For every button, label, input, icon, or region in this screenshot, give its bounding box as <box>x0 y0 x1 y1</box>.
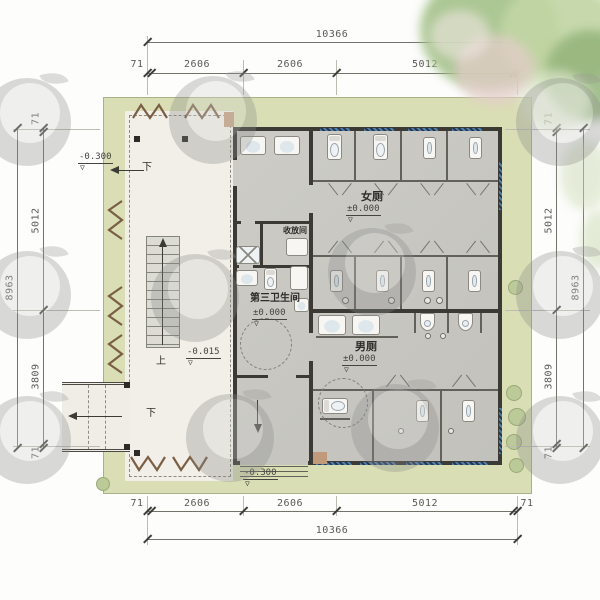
door-swing <box>452 371 476 388</box>
squat-toilet <box>423 137 436 159</box>
stall-partition <box>372 390 374 461</box>
shrub <box>96 477 110 491</box>
dim-bottom-seg: 2606 <box>268 498 312 509</box>
stall-partition <box>440 390 442 461</box>
door-swing <box>386 371 410 388</box>
level-marker-women: ±0.000▽ <box>346 204 381 223</box>
sink <box>236 270 258 286</box>
window <box>406 462 442 465</box>
sink <box>240 136 266 155</box>
squat-toilet <box>469 137 482 159</box>
dim-bottom-seg: 71 <box>128 498 146 509</box>
extension-line <box>243 60 244 95</box>
door-swing <box>328 237 352 254</box>
pier <box>224 112 234 127</box>
toilet <box>373 134 388 160</box>
door-swing <box>328 182 352 199</box>
exit-direction-line <box>118 170 144 171</box>
floor-drain <box>342 297 349 304</box>
room-label-third-bathroom: 第三卫生间 <box>240 289 310 304</box>
urinal <box>420 313 435 331</box>
floor-drain <box>440 333 446 339</box>
dim-bottom-overall: 10366 <box>310 525 354 536</box>
water-heater <box>286 238 308 256</box>
level-triangle-icon: ▽ <box>344 366 377 373</box>
wall-third-bottom <box>296 375 311 378</box>
urinal <box>458 313 473 331</box>
wall-left <box>233 186 237 465</box>
stair-direction-line <box>162 245 163 345</box>
dim-left-seg: 3809 <box>31 347 42 407</box>
dimension-line <box>147 539 517 540</box>
entry-direction-line <box>257 400 258 426</box>
door-swing <box>374 237 398 254</box>
shrub <box>509 458 524 473</box>
mop-basin <box>236 246 260 264</box>
wall-left <box>233 127 237 160</box>
trellis-zigzag <box>184 102 220 120</box>
extension-line <box>243 496 244 516</box>
squat-toilet <box>422 270 435 292</box>
urinal-screen <box>480 313 482 333</box>
flow-label-up: 上 <box>156 352 166 367</box>
sink <box>274 136 300 155</box>
level-marker-third: ±0.000▽ <box>252 308 287 327</box>
stair-direction-arrow <box>159 238 167 247</box>
level-triangle-icon: ▽ <box>80 164 113 171</box>
squat-toilet <box>468 270 481 292</box>
dim-right-seg: 3809 <box>544 347 555 407</box>
door-swing <box>420 182 444 199</box>
floor-plan-canvas: 女厕 ±0.000▽ 男厕 ±0.000▽ 第三卫生间 ±0.000▽ 收放间 … <box>0 0 600 600</box>
window <box>364 128 394 131</box>
window <box>452 128 482 131</box>
extension-line <box>13 310 100 311</box>
level-triangle-icon: ▽ <box>188 359 221 366</box>
stall-front <box>313 255 498 257</box>
shrub <box>506 434 522 450</box>
level-triangle-icon: ▽ <box>348 216 381 223</box>
dim-top-seg: 2606 <box>268 59 312 70</box>
dim-right-seg: 5012 <box>544 191 555 251</box>
dim-top-overall: 10366 <box>310 29 354 40</box>
level-marker-entrance: -0.300▽ <box>243 468 278 487</box>
toilet <box>327 134 342 160</box>
walkway-dashed-line <box>88 385 89 449</box>
door-swing <box>420 237 444 254</box>
dim-top-seg: 5012 <box>403 59 447 70</box>
walkway-dashed-line <box>105 385 106 449</box>
level-marker-men: ±0.000▽ <box>342 354 377 373</box>
tree-foliage <box>455 35 535 105</box>
sink <box>318 315 346 335</box>
trellis-zigzag <box>106 286 124 326</box>
level-marker-upper-left: -0.300▽ <box>78 152 113 171</box>
window <box>360 462 396 465</box>
window <box>499 408 502 454</box>
dimension-line <box>556 128 557 448</box>
window <box>320 128 350 131</box>
room-label-women: 女厕 <box>352 188 392 204</box>
floor-drain <box>436 297 443 304</box>
floor-drain <box>424 297 431 304</box>
window <box>408 128 438 131</box>
dim-left-seg: 71 <box>31 89 42 149</box>
door-swing <box>466 182 490 199</box>
wall-storage <box>260 221 263 267</box>
dim-top-seg: 71 <box>128 59 146 70</box>
stall-partition <box>400 256 402 309</box>
dim-left-seg: 71 <box>31 423 42 483</box>
level-triangle-icon: ▽ <box>245 480 278 487</box>
level-marker-stair: -0.015▽ <box>186 347 221 366</box>
column <box>182 136 188 142</box>
stall-partition <box>400 131 402 181</box>
dim-right-seg: 71 <box>544 423 555 483</box>
trellis-zigzag <box>130 455 166 473</box>
room-label-storage: 收放间 <box>278 225 312 236</box>
dim-bottom-seg: 2606 <box>175 498 219 509</box>
window <box>499 162 502 210</box>
door-swing <box>466 237 490 254</box>
staircase <box>146 236 180 348</box>
toilet <box>264 268 277 290</box>
exit-arrow <box>68 412 77 420</box>
shrub <box>508 280 523 295</box>
accessible-toilet <box>322 398 348 414</box>
flow-label-down: 下 <box>142 158 152 173</box>
entry-step <box>240 466 308 467</box>
wall-spine <box>309 131 313 185</box>
squat-toilet <box>416 400 429 422</box>
dimension-line <box>583 128 584 448</box>
dim-top-seg: 71 <box>518 59 536 70</box>
column <box>124 382 130 388</box>
dimension-line <box>147 73 517 74</box>
dim-top-seg: 2606 <box>175 59 219 70</box>
dim-left-seg: 5012 <box>31 191 42 251</box>
floor-drain <box>388 297 395 304</box>
squat-toilet <box>462 400 475 422</box>
trellis-zigzag <box>172 455 208 473</box>
tree-foliage <box>560 140 600 210</box>
tree-foliage <box>430 10 490 60</box>
urinal-screen <box>447 313 449 333</box>
sink <box>352 315 380 335</box>
window <box>452 462 488 465</box>
dimension-line <box>17 128 18 448</box>
wall-storage-bottom <box>233 265 239 268</box>
exit-direction-line <box>76 416 122 417</box>
extension-line <box>336 496 337 516</box>
squat-toilet <box>376 270 389 292</box>
stall-partition <box>354 256 356 309</box>
trellis-zigzag <box>132 102 168 120</box>
cabinet <box>290 266 308 290</box>
extension-line <box>147 36 148 95</box>
column <box>124 444 130 450</box>
dimension-line <box>147 511 517 512</box>
tree-foliage <box>420 0 560 90</box>
extension-line <box>336 60 337 95</box>
shrub <box>508 408 526 426</box>
dim-bottom-seg: 71 <box>518 498 536 509</box>
extension-line <box>13 129 100 130</box>
entry-arrow <box>254 424 262 433</box>
stall-partition <box>446 256 448 309</box>
trellis-zigzag <box>106 334 124 374</box>
dim-left-overall: 8963 <box>5 258 16 318</box>
dimension-line <box>147 42 517 43</box>
column <box>134 136 140 142</box>
room-label-men: 男厕 <box>346 338 386 354</box>
squat-toilet <box>330 270 343 292</box>
floor-drain <box>398 428 404 434</box>
dim-right-seg: 71 <box>544 89 555 149</box>
wall-divider <box>309 309 502 313</box>
wall-anteroom <box>255 221 311 224</box>
level-triangle-icon: ▽ <box>254 320 287 327</box>
stall-partition <box>446 131 448 181</box>
dim-bottom-seg: 5012 <box>403 498 447 509</box>
urinal-screen <box>414 313 416 333</box>
trellis-zigzag <box>106 200 124 240</box>
wall-anteroom <box>233 221 241 224</box>
planter <box>313 452 327 464</box>
dim-right-overall: 8963 <box>571 258 582 318</box>
floor-drain <box>448 428 454 434</box>
stall-partition <box>354 131 356 181</box>
flow-label-down: 下 <box>146 404 156 419</box>
dimension-line <box>43 128 44 448</box>
wall-third-bottom <box>233 375 268 378</box>
floor-drain <box>425 333 431 339</box>
extension-line <box>13 446 100 447</box>
shrub <box>506 385 522 401</box>
